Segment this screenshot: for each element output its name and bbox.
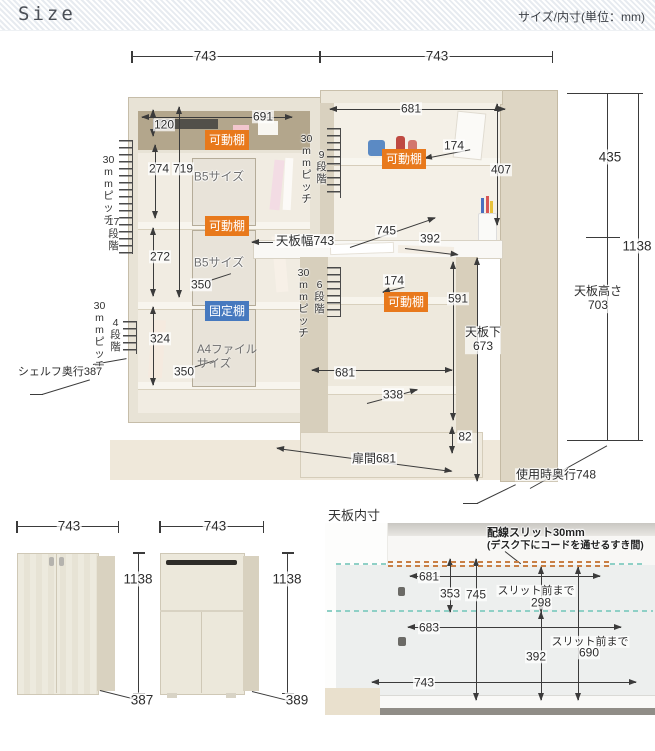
dim-line-full-depth	[476, 559, 477, 700]
dim-slit-back: 298	[530, 596, 552, 609]
wiring-slit-line	[388, 565, 610, 567]
slit-line-right	[610, 563, 645, 565]
dim-back-depth: 353	[439, 587, 461, 600]
tick-right-bottom	[567, 440, 643, 441]
closed-desk-flap-strip	[166, 560, 237, 565]
closed-shelf-seam	[56, 553, 57, 693]
steps-17-label: 17段階	[106, 216, 121, 252]
dim-full-depth: 745	[465, 588, 487, 601]
closed-shelf-handle	[49, 557, 54, 566]
dim-hutch-shelf-depth: 174	[443, 139, 465, 152]
dim-desk-depth-front: 392	[419, 232, 441, 245]
dim-under-width: 681	[334, 366, 356, 379]
dim-bottom-shelf-depth: 338	[382, 388, 404, 401]
pointer-use-depth-c	[477, 484, 516, 504]
movable-shelf-tag: 可動棚	[205, 130, 249, 150]
dim-top-width-right: 743	[425, 48, 450, 63]
pitch-label-4: 30mmピッチ	[92, 300, 107, 372]
dim-under-clearance: 天板下 673	[465, 326, 501, 354]
dim-closed-shelf-height: 1138	[122, 571, 153, 586]
dim-closed-desk-height: 1138	[271, 571, 302, 586]
size-diagram-page: Size サイズ/内寸(単位：mm) 743 743 120 691	[0, 0, 655, 751]
dim-line-right-total	[638, 93, 639, 440]
dim-line-slit-front	[578, 567, 579, 700]
pointer-use-depth-b	[463, 503, 478, 504]
dim-mid-row: 272	[149, 250, 171, 263]
dim-top-section: 120	[153, 118, 175, 131]
top-board-title: 天板内寸	[328, 505, 380, 524]
dim-hutch-width: 681	[400, 102, 422, 115]
closed-shelf-handle	[59, 557, 64, 566]
dim-line-right-inner	[607, 93, 608, 440]
tick-right-mid	[586, 237, 620, 238]
dim-door-span: 扉間681	[351, 452, 397, 465]
movable-shelf-tag: 可動棚	[384, 292, 428, 312]
dim-closed-shelf-width: 743	[57, 518, 82, 533]
dim-upper-row: 274	[148, 162, 170, 175]
header-bar: Size サイズ/内寸(単位：mm)	[0, 0, 655, 31]
ruler-ticks-9	[327, 128, 341, 198]
pointer-desk-top-width	[252, 242, 273, 243]
closed-desk-front	[160, 553, 245, 695]
dim-line-under-height	[453, 262, 454, 420]
b5-size-label: B5サイズ	[193, 256, 245, 269]
decor-frame	[453, 111, 487, 161]
dim-top-width-left: 743	[193, 48, 218, 63]
top-board-surface	[336, 565, 655, 697]
use-depth-note: 使用時奥行748	[515, 468, 597, 481]
top-board-under-shadow	[352, 708, 655, 715]
ruler-ticks-4	[123, 321, 137, 354]
dim-line-inner-height	[179, 107, 180, 297]
pitch-label-9: 30mmピッチ	[299, 133, 314, 205]
dim-back-width: 681	[418, 570, 440, 583]
closed-desk-foot	[226, 693, 236, 698]
dim-line-under-clearance	[477, 258, 478, 481]
hinge	[398, 587, 405, 596]
hinge	[398, 637, 406, 646]
fold-line	[327, 610, 653, 612]
dim-upper-height: 435	[598, 149, 623, 164]
steps-9-label: 9段階	[314, 149, 329, 185]
dim-line-lower-row	[153, 307, 154, 385]
closed-shelf-side	[97, 556, 115, 691]
movable-shelf-tag: 可動棚	[382, 149, 426, 169]
slit-note-line2: (デスク下にコードを通せるすき間)	[487, 537, 644, 552]
dim-slit-front: 690	[578, 646, 600, 659]
under-clearance-label: 天板下	[465, 326, 501, 340]
dim-line-front-width	[372, 682, 636, 683]
desk-top-width-note: 天板幅743	[275, 234, 335, 248]
desk-height-value: 703	[574, 299, 622, 313]
closed-desk-foot	[167, 693, 177, 698]
dim-closed-desk-width: 743	[203, 518, 228, 533]
b5-size-label: B5サイズ	[193, 170, 245, 183]
a4-size-label: A4ファイルサイズ	[197, 344, 259, 372]
closed-desk-door-seam	[201, 612, 202, 693]
fixed-shelf-tag: 固定棚	[205, 301, 249, 321]
dim-line-top-width-left	[132, 56, 320, 57]
shelf-depth-note: シェルフ奥行387	[17, 366, 103, 378]
page-title: Size	[18, 3, 76, 25]
pointer-shelf-depth-c	[42, 379, 90, 395]
ruler-ticks-17	[119, 140, 133, 254]
dim-line-base-height	[452, 427, 453, 453]
dim-closed-desk-depth: 389	[285, 692, 310, 707]
pitch-label-6: 30mmピッチ	[296, 267, 311, 339]
movable-shelf-tag: 可動棚	[205, 216, 249, 236]
dim-inner-height: 719	[172, 162, 194, 175]
steps-6-label: 6段階	[312, 279, 327, 315]
desk-side-panel	[500, 90, 558, 482]
ruler-ticks-6	[327, 267, 341, 317]
dim-under-height: 591	[447, 292, 469, 305]
dim-desk-height: 天板高さ 703	[574, 285, 622, 313]
desk-height-label: 天板高さ	[574, 285, 622, 299]
dim-mid-width: 683	[418, 621, 440, 634]
dim-base-height: 82	[457, 430, 472, 443]
dim-hutch-height: 407	[490, 163, 512, 176]
closed-desk-side	[243, 556, 259, 691]
dim-lower-row: 324	[149, 332, 171, 345]
dim-front-depth: 392	[525, 650, 547, 663]
dim-depth-lower: 350	[173, 365, 195, 378]
dim-desk-depth-full: 745	[375, 224, 397, 237]
unit-note: サイズ/内寸(単位：mm)	[518, 8, 645, 25]
steps-4-label: 4段階	[108, 317, 123, 353]
dim-line-upper-row	[155, 145, 156, 218]
wiring-slit-line	[388, 561, 610, 563]
tick-right-top	[567, 93, 643, 94]
dim-front-width: 743	[413, 676, 435, 689]
dim-total-height: 1138	[621, 238, 652, 253]
closed-shelf-front	[17, 553, 99, 695]
dim-depth-upper: 350	[190, 278, 212, 291]
dim-under-shelf-depth: 174	[383, 274, 405, 287]
dim-shelf-inner-width: 691	[252, 110, 274, 123]
under-clearance-value: 673	[465, 340, 501, 354]
top-board-floor	[325, 688, 380, 715]
dim-closed-shelf-depth: 387	[130, 692, 155, 707]
slit-line-left	[336, 563, 388, 565]
